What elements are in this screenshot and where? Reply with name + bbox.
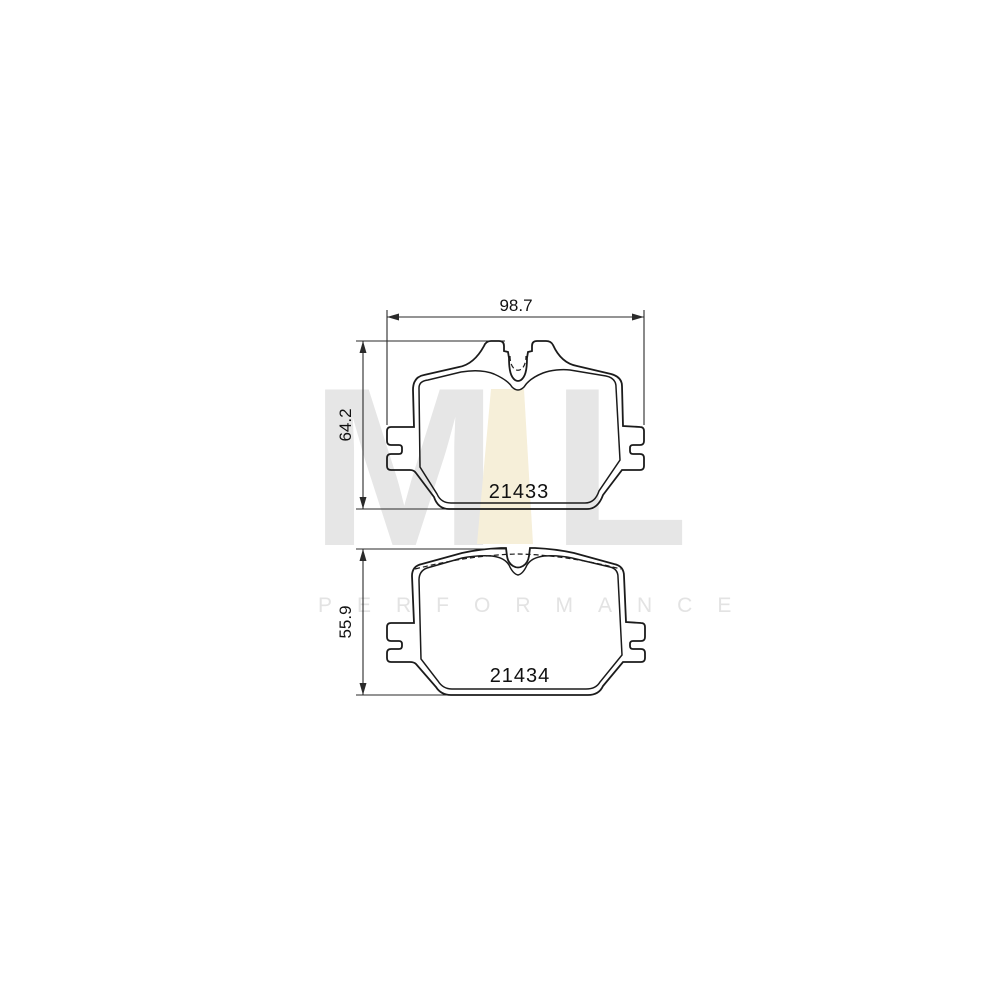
- brake-pad-drawing: M L PERFORMANCE 98.7 64.2: [0, 0, 1000, 1000]
- pad2-part-number: 21434: [490, 665, 551, 687]
- arrowhead-bottom: [360, 683, 367, 695]
- watermark-logo-l: L: [551, 340, 689, 593]
- watermark-logo-m: M: [310, 340, 498, 593]
- dimension-height-pad1-label: 64.2: [336, 408, 355, 441]
- pad1-part-number: 21433: [489, 481, 550, 503]
- pad1-notch-hidden-arc: [510, 356, 526, 370]
- watermark: M L PERFORMANCE: [310, 340, 756, 617]
- arrowhead-right: [632, 314, 644, 321]
- dimension-height-pad2-label: 55.9: [336, 605, 355, 638]
- watermark-performance-text: PERFORMANCE: [318, 594, 756, 617]
- arrowhead-left: [387, 314, 399, 321]
- dimension-width-label: 98.7: [499, 296, 532, 315]
- product-image: M L PERFORMANCE 98.7 64.2: [0, 0, 1000, 1000]
